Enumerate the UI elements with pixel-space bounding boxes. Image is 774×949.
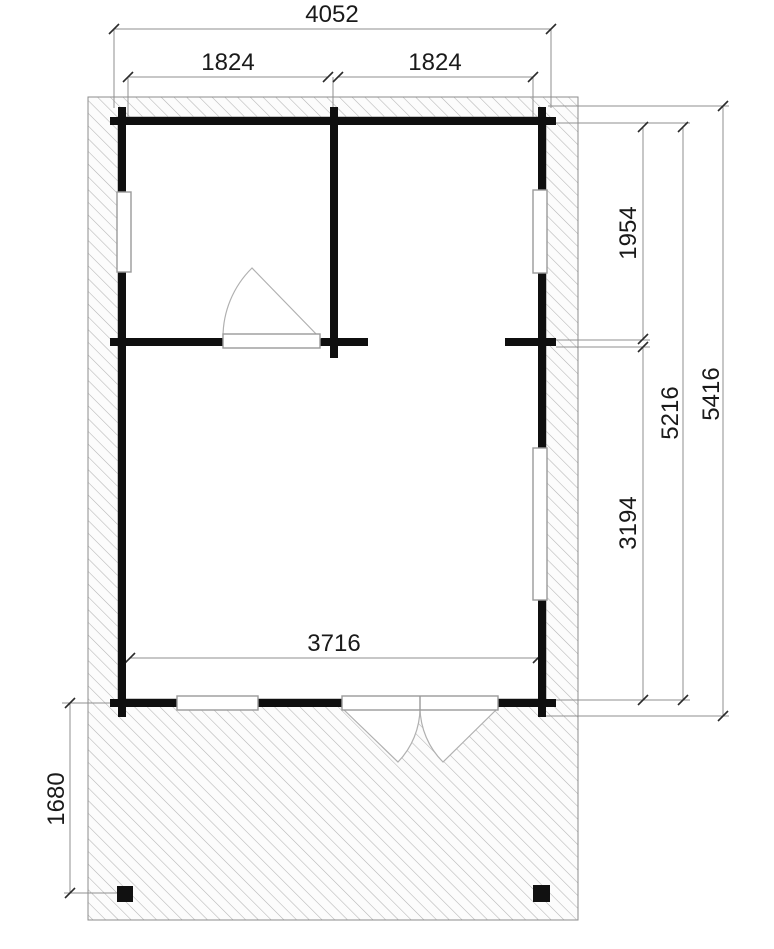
terrace-post-left [117,886,133,902]
dim-label-right-upper-room-depth: 1954 [615,206,642,259]
interior-door-leaf [223,334,320,348]
interior-door-swing [223,268,320,338]
wall-interior-right-stub [505,338,556,346]
window-bottom-wall [177,696,258,710]
wall-center-partition [330,107,338,358]
dim-label-terrace-depth: 1680 [43,772,70,825]
dim-label-left-room-width: 1824 [201,49,254,76]
dim-label-main-room-depth: 3194 [615,496,642,549]
dim-label-overall-width: 4052 [305,1,358,28]
floor-plan-canvas: 4052 1824 1824 1954 3194 5216 5416 1680 … [0,0,774,949]
floor-plan-drawing: 4052 1824 1824 1954 3194 5216 5416 1680 … [0,0,774,949]
window-right-wall-lower [533,448,547,600]
window-left-wall [117,192,131,272]
terrace-post-right [533,885,550,902]
dim-label-right-room-width: 1824 [408,49,461,76]
walls [110,107,556,717]
dim-label-main-room-width: 3716 [307,630,360,657]
dim-label-overall-depth: 5416 [698,367,725,420]
dim-label-inner-depth: 5216 [657,386,684,439]
window-right-wall-upper [533,190,547,273]
